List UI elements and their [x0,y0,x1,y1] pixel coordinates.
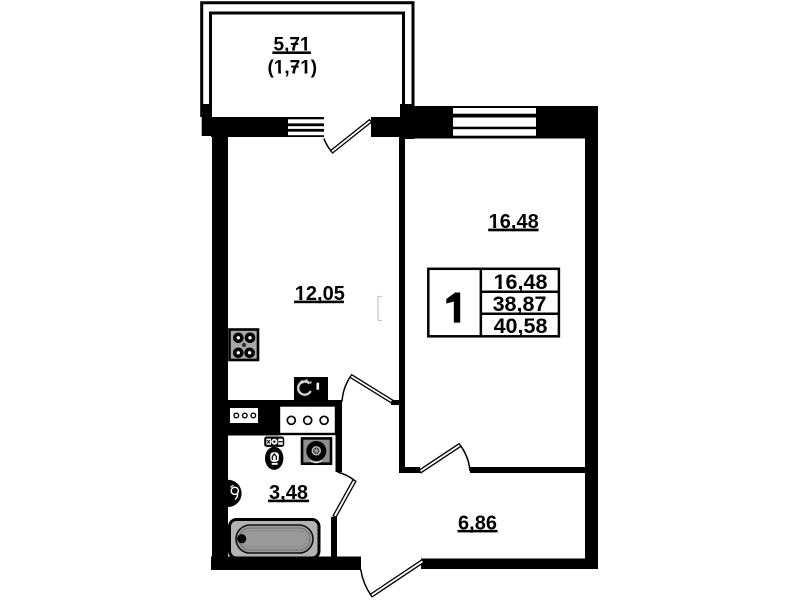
svg-text:38,87: 38,87 [493,292,547,316]
svg-text:16,48: 16,48 [494,270,548,294]
svg-text:40,58: 40,58 [494,314,548,338]
svg-text:(1,71): (1,71) [267,58,317,79]
